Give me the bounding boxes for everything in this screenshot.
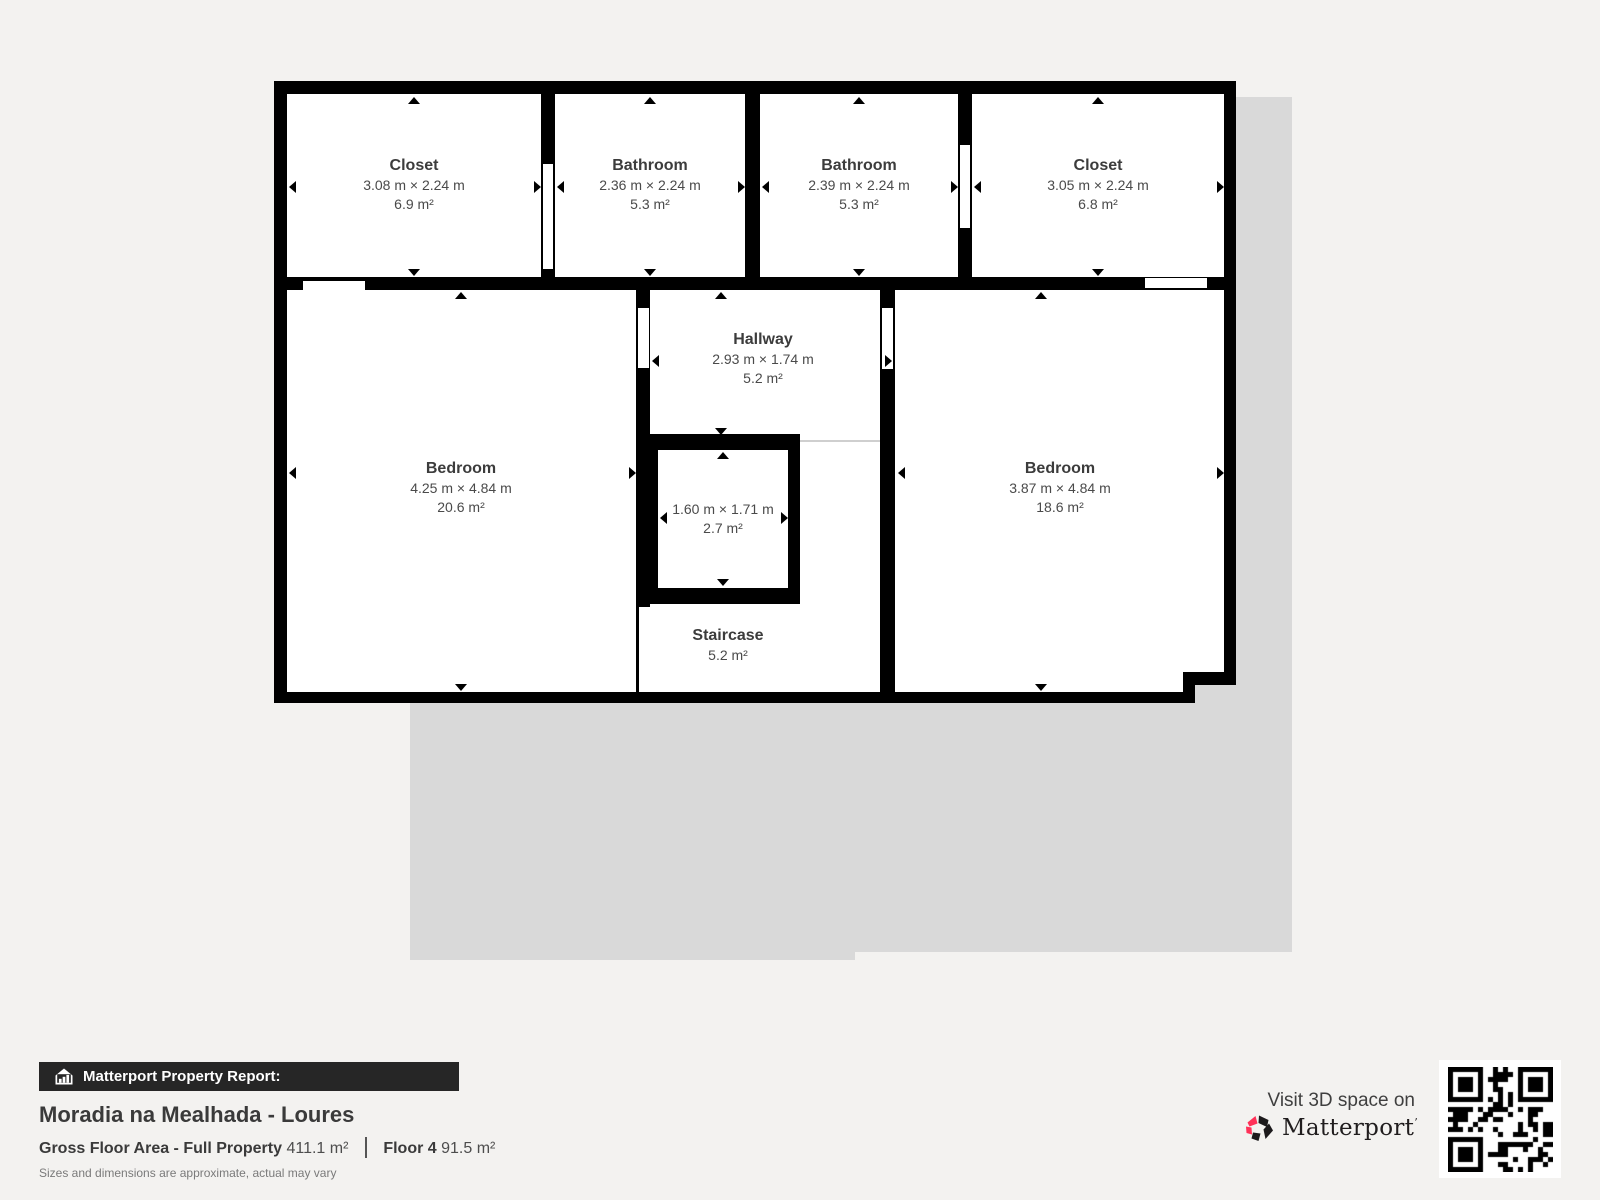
qr-code-panel bbox=[1439, 1060, 1561, 1178]
matterport-wordmark: Matterport’ bbox=[1282, 1115, 1418, 1141]
door-opening-closet2-bedroom2 bbox=[1145, 278, 1207, 288]
dim-arrow-left bbox=[762, 181, 769, 193]
dim-arrow-up bbox=[644, 97, 656, 104]
visit-3d-space-text: Visit 3D space on bbox=[1267, 1090, 1415, 1112]
dim-arrow-up bbox=[1092, 97, 1104, 104]
room-bedroom-1 bbox=[287, 290, 636, 692]
open-boundary-line bbox=[800, 440, 880, 442]
door-opening-bedroom1-staircase bbox=[639, 607, 650, 692]
dim-arrow-right bbox=[738, 181, 745, 193]
dim-arrow-right bbox=[534, 181, 541, 193]
dim-arrow-up bbox=[853, 97, 865, 104]
dim-arrow-up bbox=[408, 97, 420, 104]
room-bathroom-1 bbox=[555, 94, 745, 277]
dim-arrow-right bbox=[951, 181, 958, 193]
floor-area-value: 91.5 m² bbox=[441, 1140, 495, 1157]
report-bar-label: Matterport Property Report: bbox=[83, 1068, 281, 1085]
dim-arrow-left bbox=[289, 467, 296, 479]
disclaimer-text: Sizes and dimensions are approximate, ac… bbox=[39, 1166, 336, 1180]
footprint-shadow-bottom bbox=[410, 685, 1292, 952]
door-opening-closet1-bedroom1 bbox=[303, 281, 365, 292]
dim-arrow-left bbox=[660, 512, 667, 524]
door-opening-bathroom2-closet2 bbox=[960, 145, 970, 228]
dim-arrow-down bbox=[853, 269, 865, 276]
dim-arrow-down bbox=[408, 269, 420, 276]
dim-arrow-down bbox=[1092, 269, 1104, 276]
dim-arrow-up bbox=[715, 292, 727, 299]
room-closet-1 bbox=[287, 94, 541, 277]
floor-label: Floor 4 bbox=[383, 1140, 436, 1157]
matterport-logo-icon bbox=[1244, 1113, 1274, 1143]
dim-arrow-left bbox=[289, 181, 296, 193]
dim-arrow-right bbox=[1217, 467, 1224, 479]
matterport-logo: Matterport’ bbox=[1244, 1113, 1418, 1143]
divider bbox=[365, 1137, 367, 1158]
room-closet-2 bbox=[972, 94, 1224, 277]
room-bedroom-2 bbox=[895, 290, 1183, 692]
dim-arrow-up bbox=[1035, 292, 1047, 299]
report-info-line: Gross Floor Area - Full Property 411.1 m… bbox=[39, 1137, 495, 1158]
dim-arrow-right bbox=[1217, 181, 1224, 193]
gross-floor-area-value: 411.1 m² bbox=[286, 1140, 348, 1157]
dim-arrow-right bbox=[629, 467, 636, 479]
dim-arrow-down bbox=[1035, 684, 1047, 691]
house-report-icon bbox=[55, 1068, 73, 1085]
dim-arrow-down bbox=[717, 579, 729, 586]
door-opening-closet1-bathroom1 bbox=[543, 164, 553, 269]
room-bedroom-2-alcove bbox=[1183, 290, 1224, 672]
room-small bbox=[658, 450, 788, 588]
qr-code bbox=[1448, 1067, 1553, 1172]
dim-arrow-left bbox=[974, 181, 981, 193]
dim-arrow-right bbox=[781, 512, 788, 524]
footprint-shadow-bottom-step bbox=[410, 952, 855, 960]
dim-arrow-left bbox=[652, 355, 659, 367]
dim-arrow-left bbox=[557, 181, 564, 193]
floor-plan-page: Closet 3.08 m × 2.24 m 6.9 m² Bathroom 2… bbox=[0, 0, 1600, 1200]
dim-arrow-down bbox=[715, 428, 727, 435]
dim-arrow-left bbox=[898, 467, 905, 479]
door-opening-bedroom1-hallway bbox=[638, 308, 649, 368]
room-bathroom-2 bbox=[760, 94, 958, 277]
property-title: Moradia na Mealhada - Loures bbox=[39, 1102, 354, 1128]
dim-arrow-up bbox=[455, 292, 467, 299]
dim-arrow-up bbox=[717, 452, 729, 459]
gross-floor-area-label: Gross Floor Area - Full Property bbox=[39, 1140, 282, 1157]
dim-arrow-right bbox=[885, 355, 892, 367]
trademark-mark: ’ bbox=[1414, 1116, 1418, 1129]
dim-arrow-down bbox=[644, 269, 656, 276]
dim-arrow-down bbox=[455, 684, 467, 691]
report-header-bar: Matterport Property Report: bbox=[39, 1062, 459, 1091]
